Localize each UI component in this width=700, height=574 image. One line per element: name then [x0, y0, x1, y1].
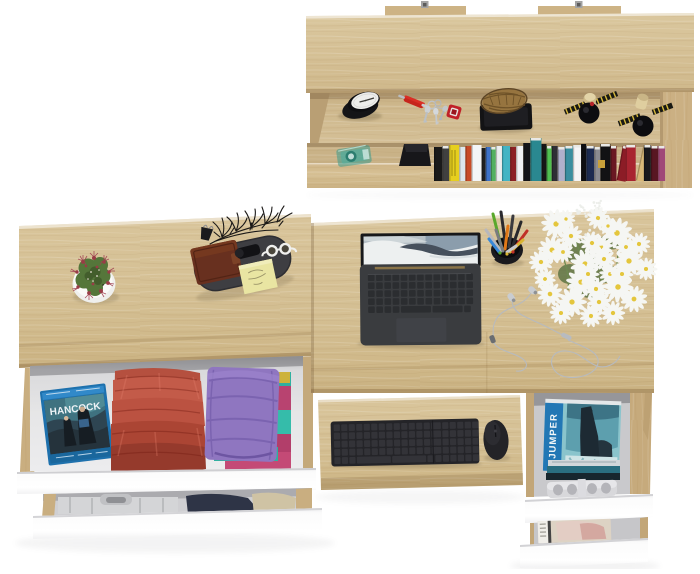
svg-text:JUMPER: JUMPER [547, 413, 560, 459]
